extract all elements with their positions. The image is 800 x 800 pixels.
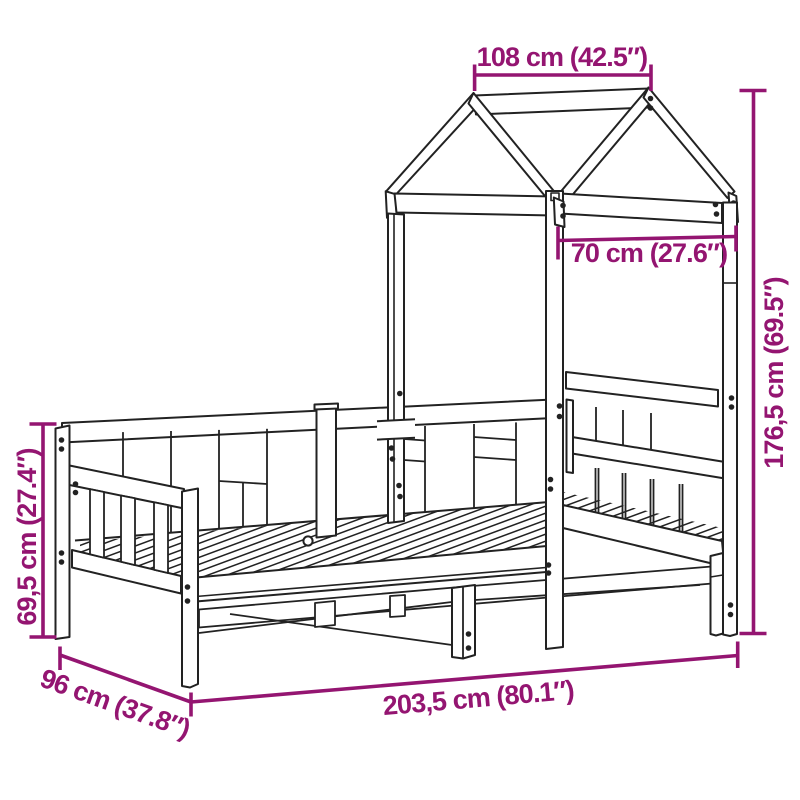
svg-text:70 cm (27.6″): 70 cm (27.6″) xyxy=(571,238,727,268)
svg-text:176,5 cm (69.5″): 176,5 cm (69.5″) xyxy=(759,277,789,468)
svg-text:69,5 cm (27.4″): 69,5 cm (27.4″) xyxy=(12,448,42,625)
svg-text:108 cm (42.5″): 108 cm (42.5″) xyxy=(477,42,648,72)
